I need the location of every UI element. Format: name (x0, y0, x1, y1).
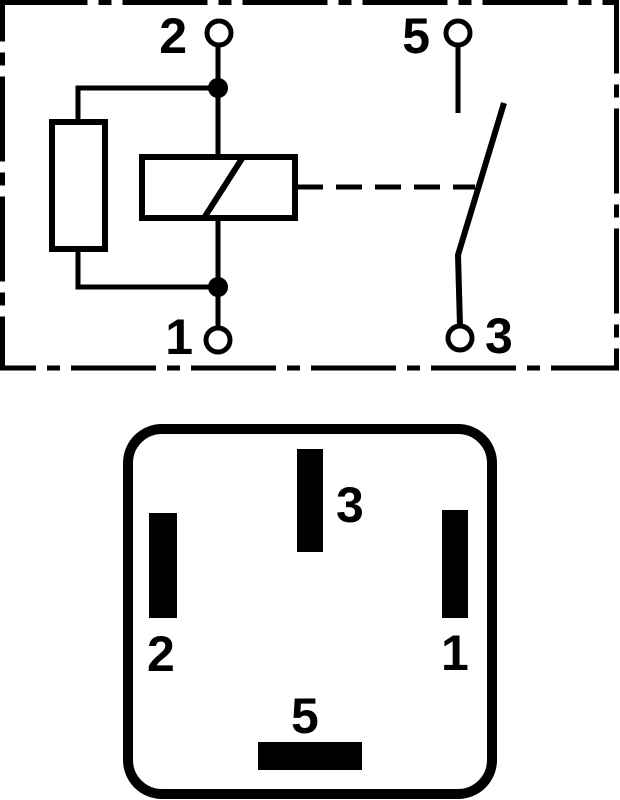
terminal-5-circle (446, 21, 470, 45)
resistor-body (52, 122, 105, 249)
relay-coil-body (142, 157, 295, 218)
socket-pin-1-label: 1 (441, 625, 469, 681)
terminal-1-circle (206, 328, 230, 352)
junction-dot-top (208, 78, 228, 98)
relay-diagram-page: 2 5 1 3 3 2 1 5 (0, 0, 620, 800)
wire-resistor-top-branch (78, 88, 218, 122)
relay-diagram-canvas: 2 5 1 3 3 2 1 5 (0, 0, 620, 800)
socket-pin-1 (442, 510, 468, 618)
socket-pin-3-label: 3 (336, 477, 364, 533)
socket-pin-5 (258, 742, 362, 770)
socket-pin-2 (149, 513, 177, 618)
socket-pin-5-label: 5 (291, 688, 319, 744)
terminal-2-circle (207, 21, 231, 45)
junction-dot-bottom (208, 277, 228, 297)
wire-resistor-bottom-branch (78, 249, 218, 287)
terminal-3-circle (448, 326, 472, 350)
terminal-5-label: 5 (402, 8, 430, 64)
socket-pin-2-label: 2 (147, 626, 175, 682)
terminal-2-label: 2 (159, 8, 187, 64)
terminal-1-label: 1 (165, 309, 193, 365)
schematic-section: 2 5 1 3 (3, 3, 617, 369)
socket-section: 3 2 1 5 (128, 429, 492, 794)
terminal-3-label: 3 (485, 308, 513, 364)
switch-blade (458, 103, 504, 326)
socket-pin-3 (297, 449, 323, 552)
